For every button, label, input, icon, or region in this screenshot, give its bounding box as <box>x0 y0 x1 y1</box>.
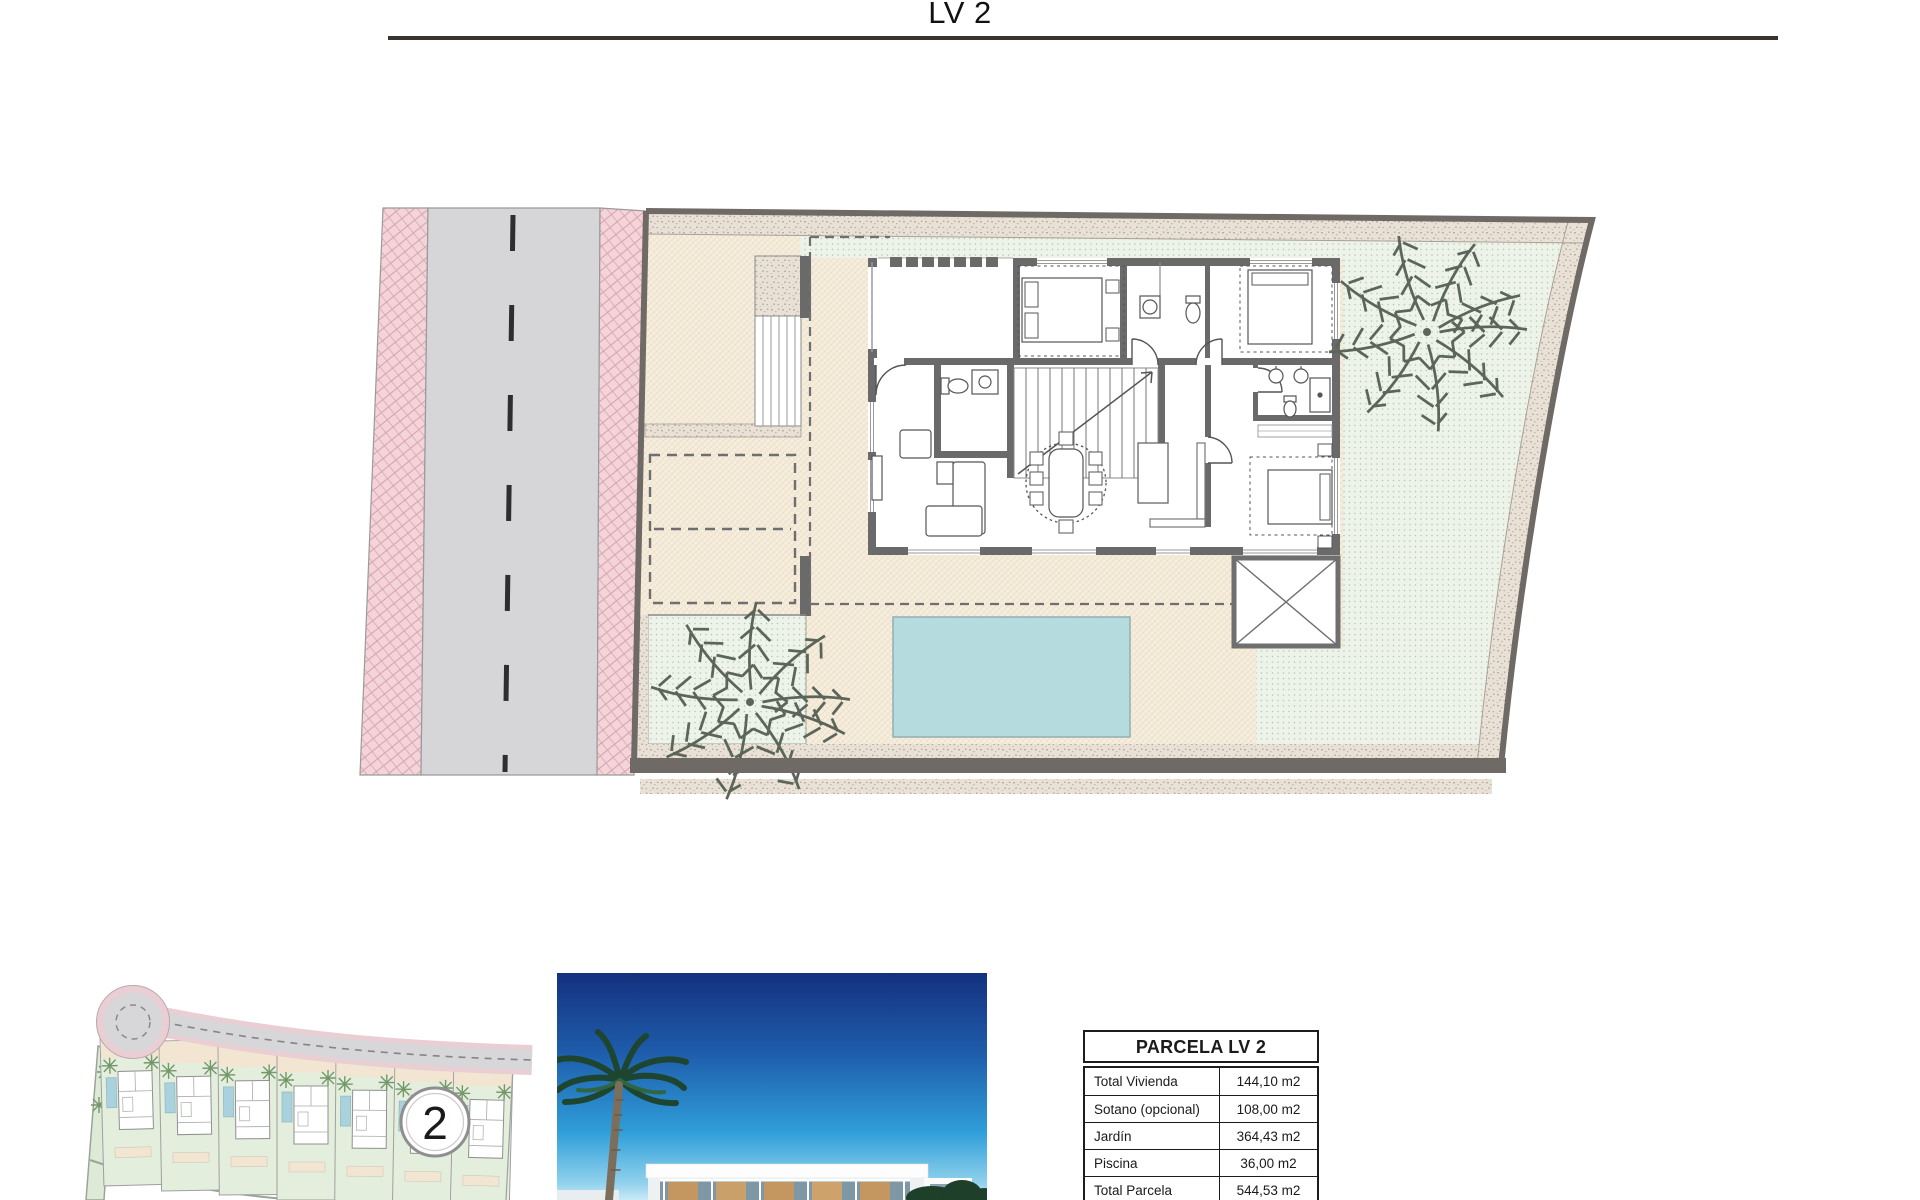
row-value: 544,53 m2 <box>1220 1183 1317 1198</box>
current-plot-badge: 2 <box>401 1088 469 1156</box>
pergola-slats-icon <box>878 257 1013 267</box>
plot-cell-5 <box>335 1054 395 1200</box>
row-value: 36,00 m2 <box>1220 1156 1317 1171</box>
row-value: 108,00 m2 <box>1220 1102 1317 1117</box>
plot-cell-4 <box>277 1050 336 1200</box>
row-label: Jardín <box>1085 1123 1220 1149</box>
road <box>360 208 646 775</box>
table-row: Sotano (opcional) 108,00 m2 <box>1085 1095 1317 1122</box>
table-row: Total Vivienda 144,10 m2 <box>1085 1068 1317 1095</box>
pergola-box <box>1234 558 1338 646</box>
table-row: Jardín 364,43 m2 <box>1085 1122 1317 1149</box>
sidewalk-outside-bottom <box>640 779 1492 794</box>
areas-table-header: PARCELA LV 2 <box>1083 1030 1319 1063</box>
table-row: Piscina 36,00 m2 <box>1085 1149 1317 1176</box>
entry-steps <box>755 316 801 426</box>
plan-sheet: LV 2 <box>0 0 1920 1200</box>
table-row: Total Parcela 544,53 m2 <box>1085 1176 1317 1200</box>
minimap: 2 <box>80 965 540 1200</box>
plot-cell-3 <box>218 1044 278 1195</box>
kitchen-island-icon <box>1138 443 1168 503</box>
areas-table-body: Total Vivienda 144,10 m2 Sotano (opciona… <box>1083 1066 1319 1200</box>
tv-unit-icon <box>872 456 882 500</box>
entry-planter <box>755 256 801 316</box>
row-value: 144,10 m2 <box>1220 1074 1317 1089</box>
row-label: Piscina <box>1085 1150 1220 1176</box>
badge-number: 2 <box>422 1097 448 1149</box>
pool <box>893 617 1130 737</box>
row-label: Total Vivienda <box>1085 1068 1220 1095</box>
house <box>868 257 1340 555</box>
villa-render <box>557 973 987 1200</box>
row-value: 364,43 m2 <box>1220 1129 1317 1144</box>
areas-table: PARCELA LV 2 Total Vivienda 144,10 m2 So… <box>1083 1030 1319 1200</box>
armchair-icon <box>900 430 931 458</box>
cul-de-sac <box>97 986 170 1059</box>
row-label: Sotano (opcional) <box>1085 1096 1220 1122</box>
row-label: Total Parcela <box>1085 1177 1220 1200</box>
villa-glazing <box>660 1179 910 1200</box>
plot-cell-2 <box>159 1040 221 1191</box>
road-sidewalk-left <box>360 208 428 775</box>
